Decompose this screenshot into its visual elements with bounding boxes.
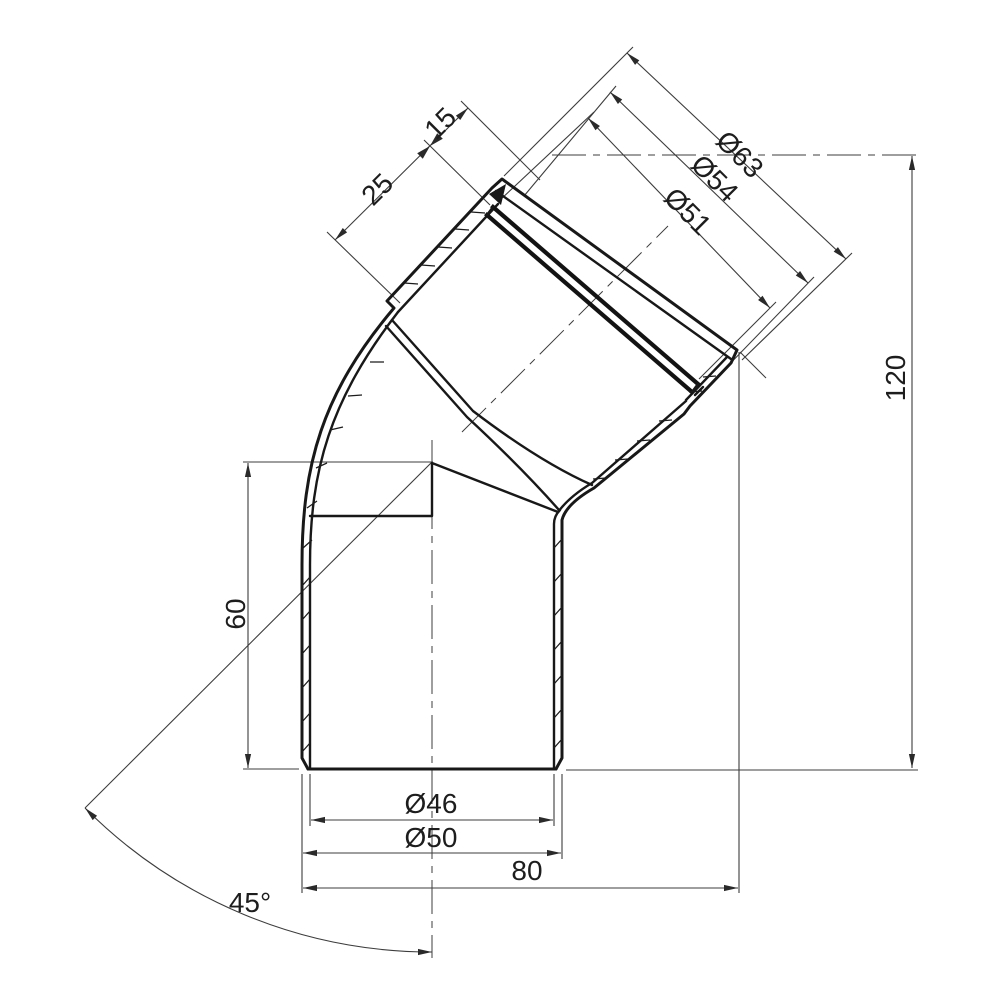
dim-label-pipe-outer: Ø50 bbox=[405, 822, 458, 853]
body-lower-wall-inner bbox=[558, 401, 686, 512]
dim-label-overall-height: 120 bbox=[880, 355, 911, 402]
extension-lines bbox=[85, 47, 918, 893]
dim-label-ring-zone: 15 bbox=[418, 101, 462, 145]
elbow-fitting-drawing: 60 120 80 Ø46 Ø50 45° Ø63 Ø54 Ø51 15 25 bbox=[0, 0, 1000, 1000]
dimension-lines bbox=[85, 53, 912, 952]
socket-upper-wall-inner bbox=[398, 204, 498, 312]
interior-junction bbox=[310, 463, 558, 516]
right-wall-inner bbox=[554, 510, 560, 769]
dim-label-center-to-end: 60 bbox=[220, 598, 251, 629]
fitting-outline bbox=[302, 179, 737, 769]
technical-drawing: 60 120 80 Ø46 Ø50 45° Ø63 Ø54 Ø51 15 25 bbox=[0, 0, 1000, 1000]
centerlines bbox=[432, 155, 918, 958]
angle-arc-45 bbox=[85, 808, 432, 952]
angle-reference-line bbox=[85, 462, 432, 808]
dim-label-pipe-inner: Ø46 bbox=[405, 788, 458, 819]
ring-ridge-inner bbox=[493, 207, 698, 384]
dim-label-socket-depth: 25 bbox=[355, 167, 399, 211]
wall-hatching bbox=[302, 212, 716, 752]
dim-label-overall-width: 80 bbox=[511, 855, 542, 886]
outer-contour bbox=[302, 179, 737, 769]
dim-label-angle: 45° bbox=[229, 887, 271, 918]
